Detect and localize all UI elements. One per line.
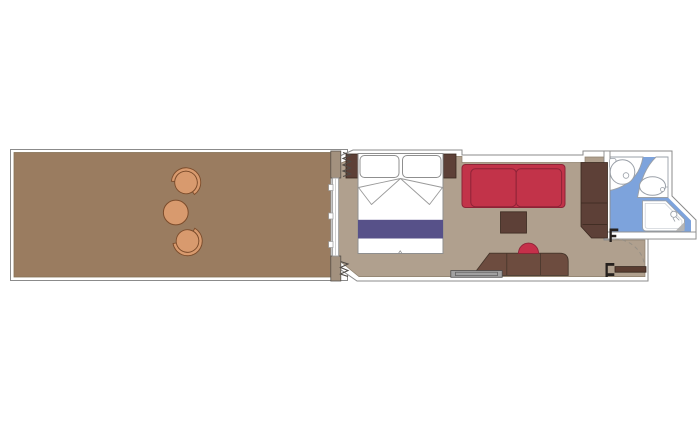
bathroom <box>603 151 696 240</box>
entry-door <box>615 267 646 273</box>
round-side-table <box>163 200 188 225</box>
nightstand-right <box>444 154 457 178</box>
door-track-notch-1 <box>329 185 333 191</box>
sofa-cushion-left <box>471 169 516 207</box>
bed-runner <box>358 220 443 239</box>
coffee-table <box>501 212 527 233</box>
toilet <box>640 177 666 196</box>
divider-wall-bottom <box>331 256 341 281</box>
floor-plan-page <box>0 0 700 433</box>
washbasin <box>610 160 635 185</box>
jamb-tick-1 <box>606 263 615 266</box>
washbasin-drain <box>623 173 629 179</box>
pillow-left <box>360 156 399 178</box>
divider-wall-top <box>331 151 341 178</box>
luggage-bench <box>451 271 502 278</box>
door-track-notch-2 <box>329 213 333 219</box>
door-track-notch-3 <box>329 242 333 248</box>
floor-plan-canvas <box>0 0 700 433</box>
shower-head-icon <box>671 211 677 217</box>
jamb-tick-2 <box>610 235 617 238</box>
jamb-tick-2 <box>606 273 615 276</box>
bedroom-furniture <box>346 154 456 254</box>
jamb-tick-1 <box>610 229 619 232</box>
sofa-cushion-right <box>516 169 561 207</box>
bathroom-bottom-wall <box>604 232 696 239</box>
toilet-flush-button <box>661 188 665 192</box>
wardrobe <box>581 163 608 239</box>
pillow-right <box>403 156 442 178</box>
